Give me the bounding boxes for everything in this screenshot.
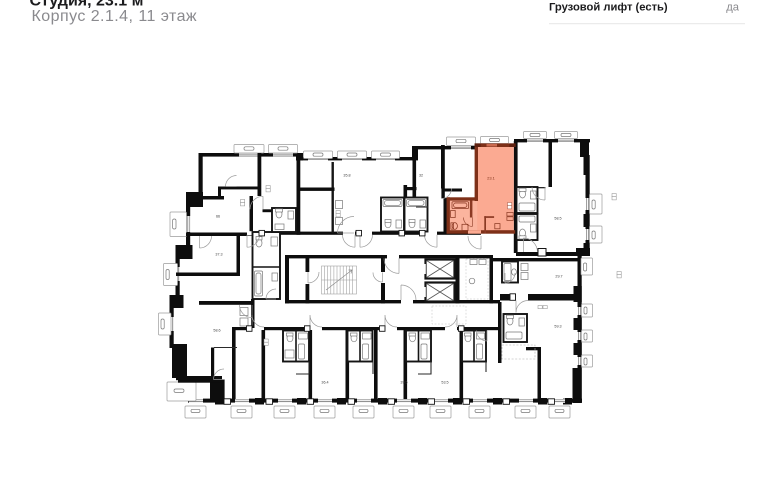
svg-text:да: да <box>726 2 740 14</box>
svg-text:29.7: 29.7 <box>555 275 562 279</box>
svg-text:23.1: 23.1 <box>487 176 496 181</box>
svg-text:39.5: 39.5 <box>400 381 407 385</box>
svg-text:Корпус 2.1.4, 11 этаж: Корпус 2.1.4, 11 этаж <box>32 8 198 25</box>
svg-text:66: 66 <box>216 215 220 219</box>
svg-text:35.8: 35.8 <box>343 174 350 178</box>
svg-text:58.6: 58.6 <box>213 329 220 333</box>
svg-text:59.3: 59.3 <box>554 325 561 329</box>
svg-text:32: 32 <box>419 174 423 178</box>
svg-text:53.5: 53.5 <box>441 381 448 385</box>
svg-text:36.4: 36.4 <box>321 381 328 385</box>
svg-text:Грузовой лифт (есть): Грузовой лифт (есть) <box>549 2 668 14</box>
svg-text:37.3: 37.3 <box>215 253 222 257</box>
svg-text:58.5: 58.5 <box>554 217 561 221</box>
